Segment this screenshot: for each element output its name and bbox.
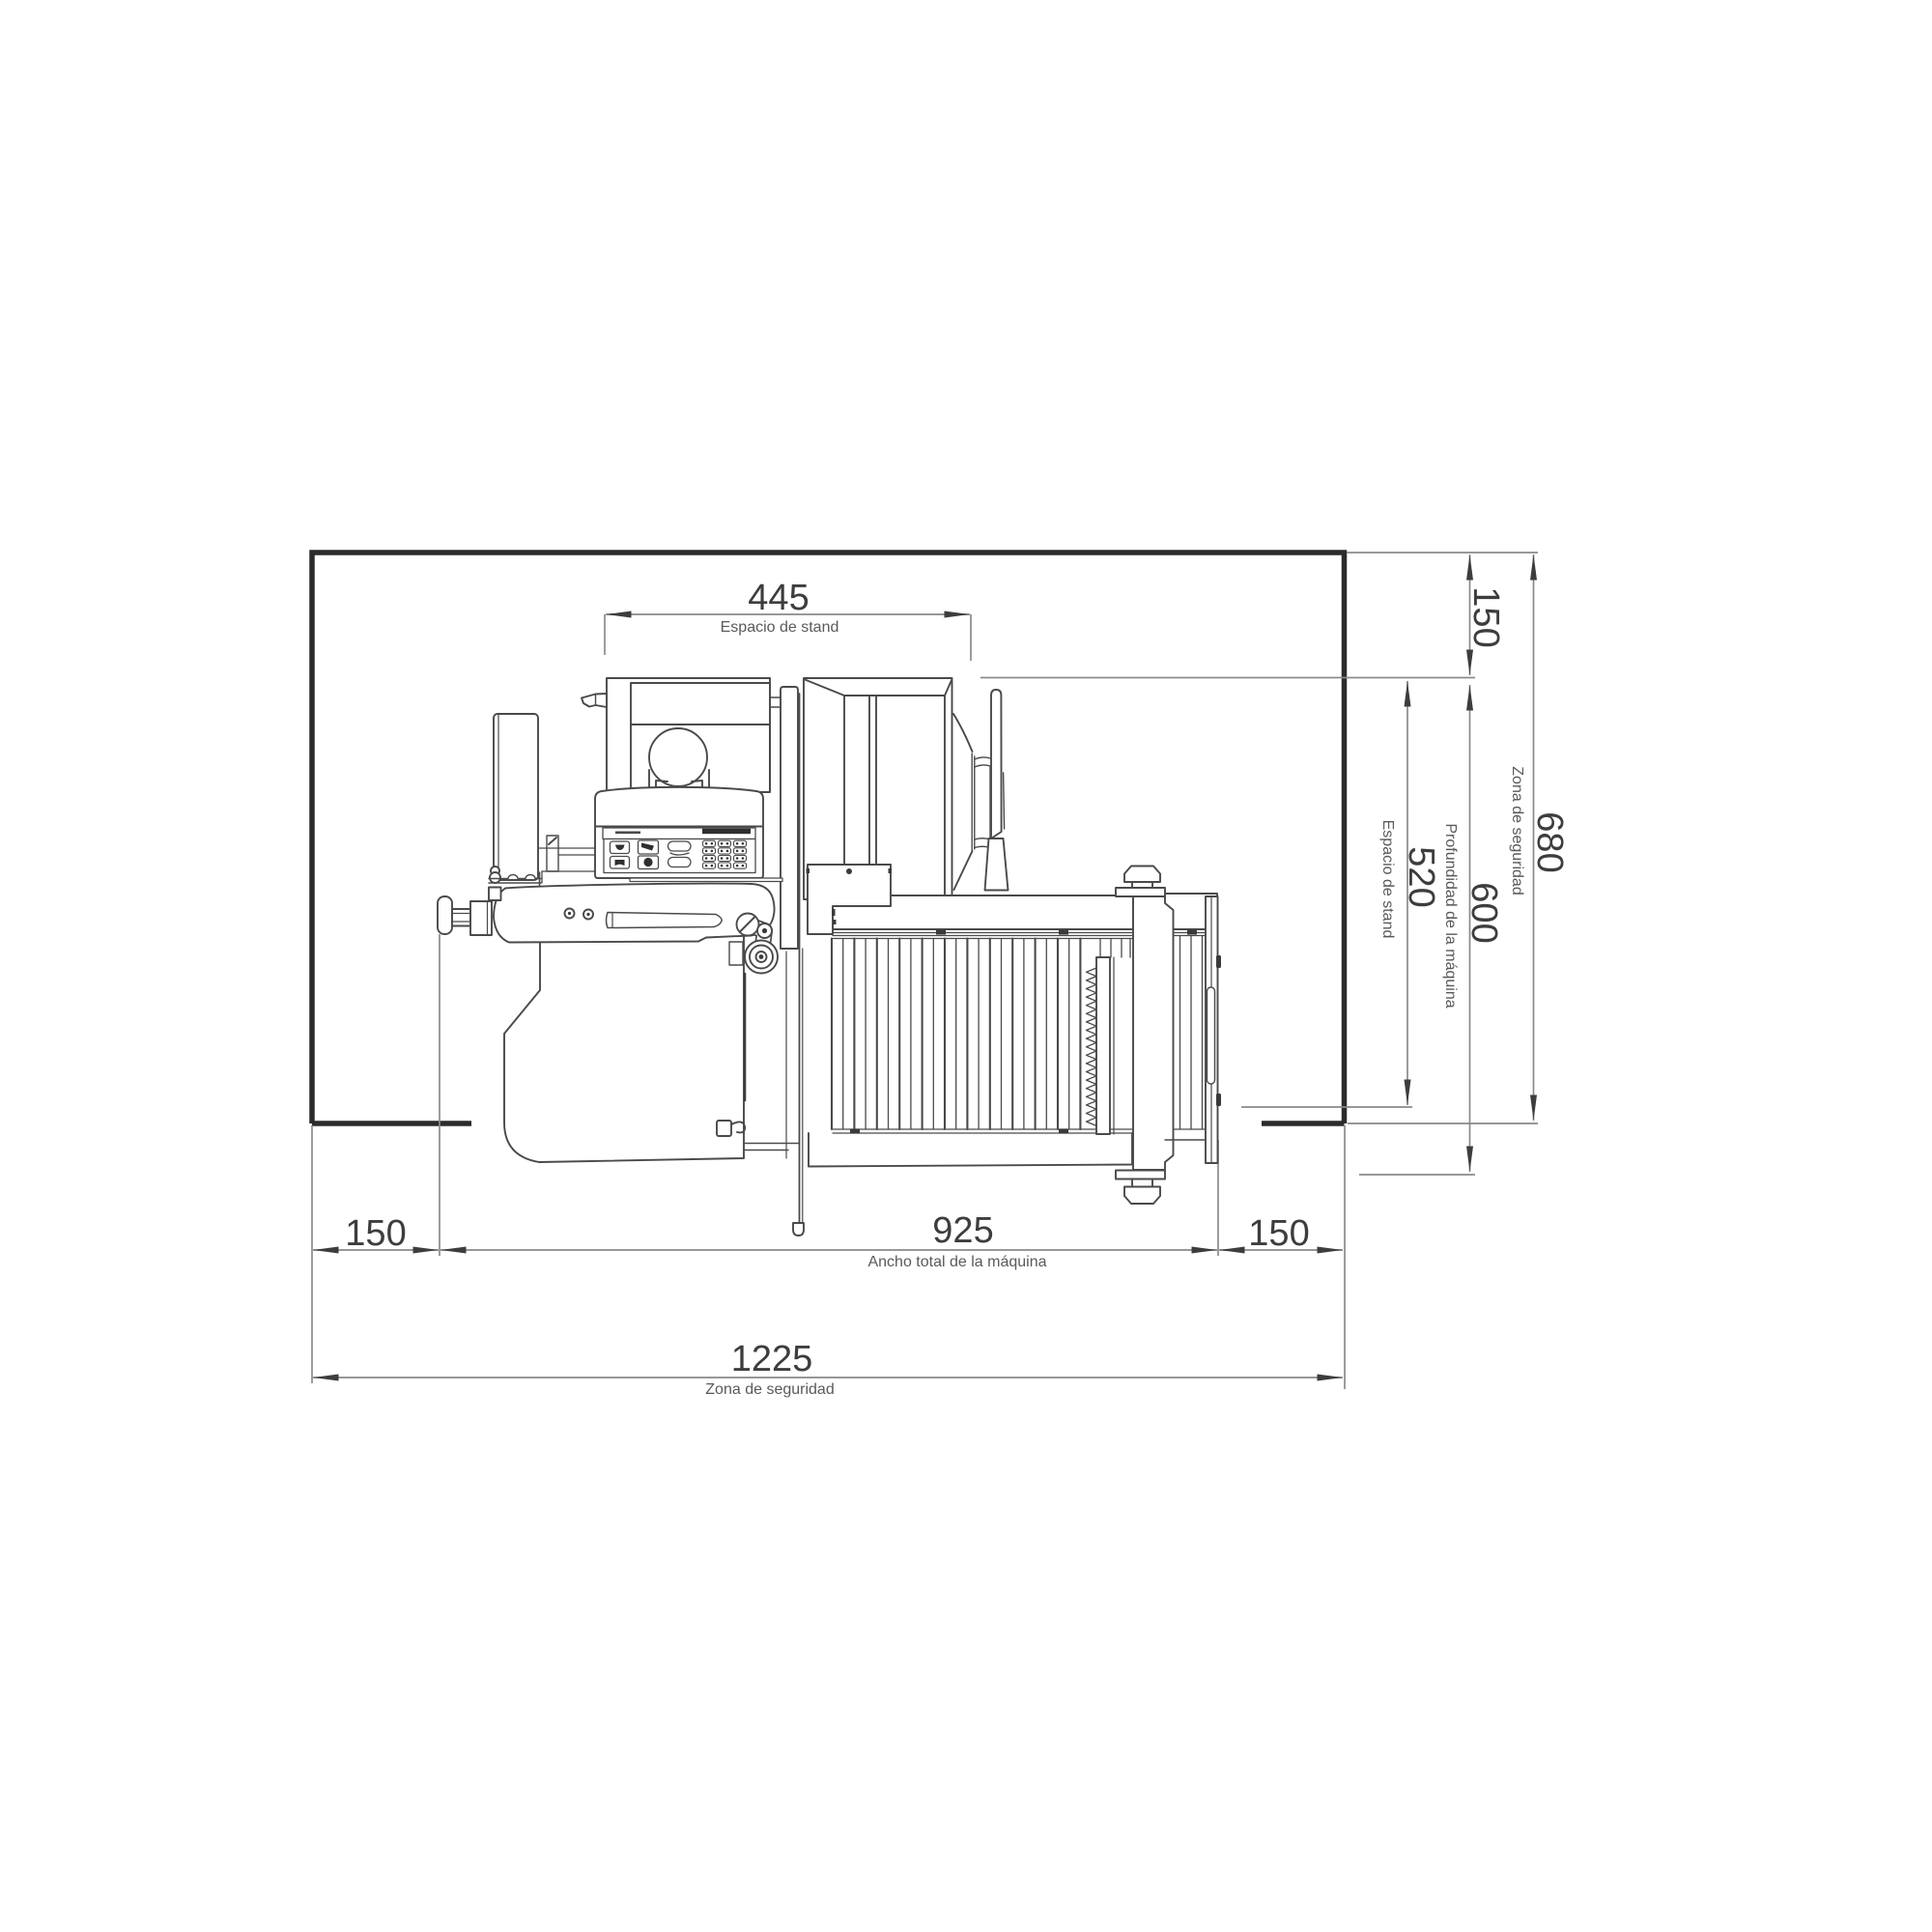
svg-text:520: 520: [1401, 846, 1441, 907]
svg-text:Espacio de stand: Espacio de stand: [721, 619, 839, 636]
svg-text:600: 600: [1463, 882, 1504, 943]
svg-text:1225: 1225: [731, 1339, 813, 1379]
svg-text:680: 680: [1529, 811, 1570, 872]
svg-text:Zona de seguridad: Zona de seguridad: [705, 1381, 834, 1398]
svg-text:Profundidad de la máquina: Profundidad de la máquina: [1442, 823, 1459, 1008]
svg-text:Ancho total de la máquina: Ancho total de la máquina: [867, 1254, 1046, 1270]
svg-text:150: 150: [1465, 586, 1506, 647]
svg-text:445: 445: [748, 578, 809, 618]
svg-text:150: 150: [1248, 1213, 1309, 1254]
svg-text:Zona de seguridad: Zona de seguridad: [1509, 766, 1525, 895]
svg-text:Espacio de stand: Espacio de stand: [1379, 820, 1396, 939]
svg-text:925: 925: [932, 1210, 993, 1251]
svg-text:150: 150: [345, 1213, 406, 1254]
